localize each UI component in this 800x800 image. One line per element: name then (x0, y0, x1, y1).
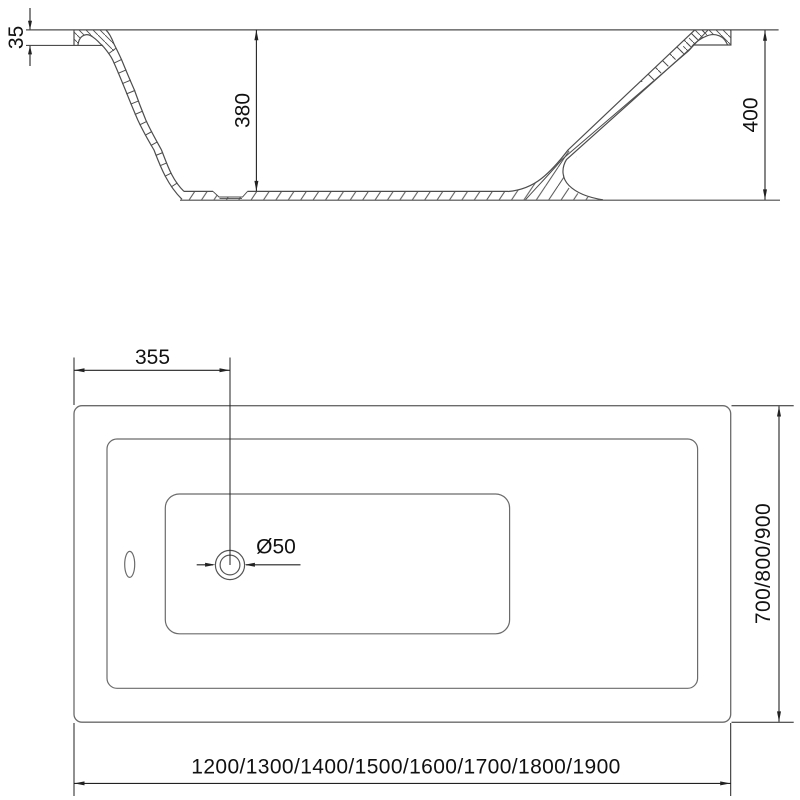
svg-text:380: 380 (231, 93, 254, 128)
svg-text:400: 400 (740, 97, 763, 132)
svg-text:700/800/900: 700/800/900 (752, 503, 775, 624)
svg-text:Ø50: Ø50 (256, 536, 296, 559)
svg-text:35: 35 (5, 26, 28, 49)
svg-text:1200/1300/1400/1500/1600/1700/: 1200/1300/1400/1500/1600/1700/1800/1900 (191, 755, 620, 778)
svg-text:355: 355 (135, 346, 170, 369)
